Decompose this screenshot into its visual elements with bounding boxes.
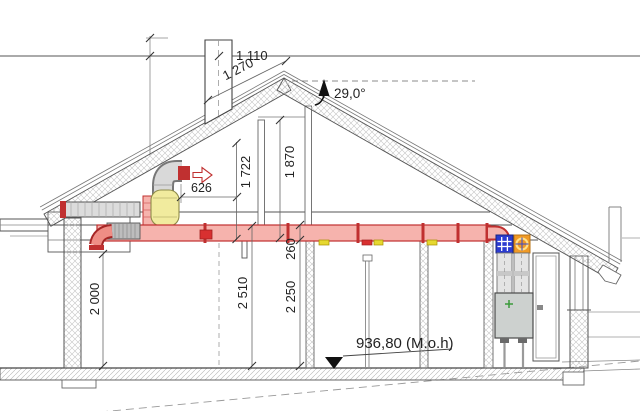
dim-2000: 2 000 — [87, 250, 107, 370]
interior-wall-3 — [484, 240, 493, 368]
section-drawing: 1 110 1 270 29,0° 626 1 7 — [0, 0, 640, 411]
right-exterior-wall — [567, 256, 591, 368]
interior-wall-1 — [306, 240, 314, 368]
level-marker-icon — [325, 357, 343, 369]
dim-2510-label: 2 510 — [235, 277, 250, 310]
slope-arrow-icon — [319, 79, 330, 96]
wall-stub — [242, 240, 247, 258]
valve-yellow-icon — [427, 240, 437, 245]
valve-yellow-icon — [319, 240, 329, 245]
dim-260-label: 260 — [283, 238, 298, 260]
intake-wall-cap — [60, 201, 66, 218]
dim-626-label: 626 — [191, 181, 212, 195]
left-exterior-wall — [64, 218, 81, 368]
supply-filter-icon — [496, 235, 513, 253]
dim-2000-label: 2 000 — [87, 283, 102, 316]
valve-red-icon — [362, 240, 372, 245]
roof-angle-label: 29,0° — [334, 86, 366, 101]
section-drawing-canvas: 1 110 1 270 29,0° 626 1 7 — [0, 0, 640, 411]
door-handle — [537, 305, 543, 310]
floor-level-label: 936,80 (M.o.h) — [356, 335, 454, 352]
exhaust-connector — [178, 166, 190, 180]
valve-yellow-icon — [374, 240, 383, 245]
hrv-cabinet — [495, 293, 533, 338]
dim-626: 626 — [177, 181, 241, 203]
unit-duct-stubs — [497, 253, 529, 293]
dim-2250-label: 2 250 — [283, 281, 298, 314]
silencer — [151, 190, 179, 226]
floor-level-annotation: 936,80 (M.o.h) — [325, 335, 454, 369]
floor-slab — [0, 368, 584, 388]
dim-1870-label: 1 870 — [282, 146, 297, 179]
intake-duct — [60, 201, 140, 218]
interior-door — [533, 253, 559, 361]
duct-damper-icon — [200, 230, 212, 239]
hrv-unit — [488, 233, 533, 367]
roof-right-slope — [277, 78, 618, 280]
riser-and-silencer — [143, 166, 212, 227]
dim-1722-label: 1 722 — [238, 156, 253, 189]
dim-260-2250: 260 2 250 — [283, 221, 304, 370]
